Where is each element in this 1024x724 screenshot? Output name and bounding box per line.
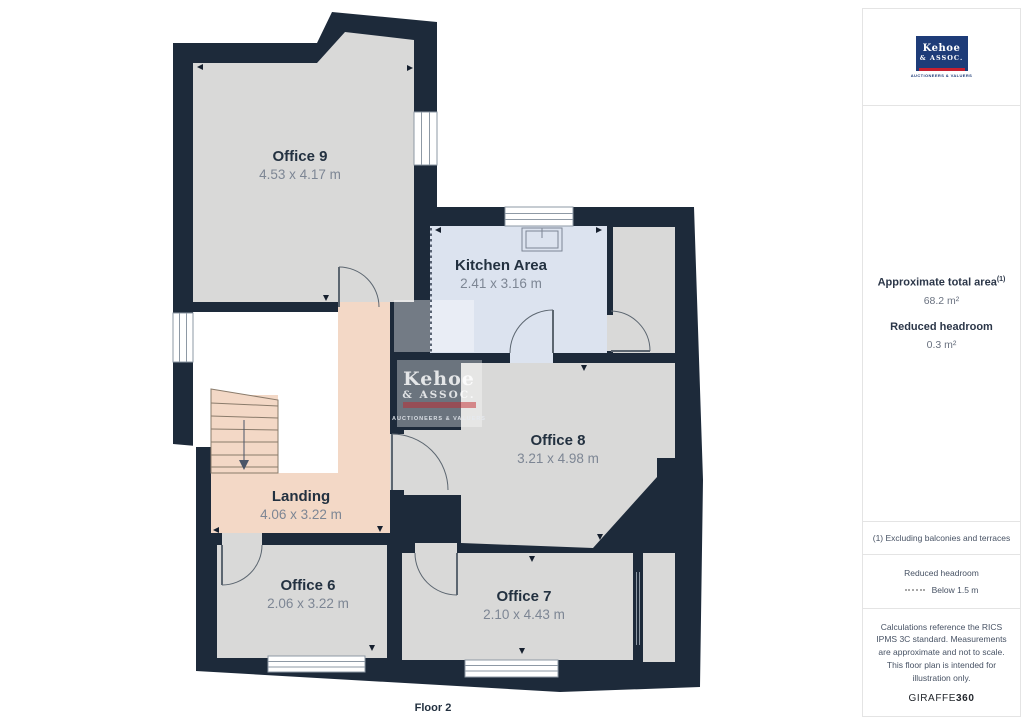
svg-text:& ASSOC.: & ASSOC. [402,389,475,401]
svg-text:Kehoe: Kehoe [403,368,475,390]
headroom-label: Reduced headroom [890,321,993,333]
disclaimer-text: Calculations reference the RICS IPMS 3C … [872,621,1012,685]
floor-plan-page: Office 9 4.53 x 4.17 m Kitchen Area 2.41… [0,0,1024,724]
office-9-label: Office 9 [272,148,327,165]
office-9-dim: 4.53 x 4.17 m [259,167,341,182]
office-7-label: Office 7 [496,588,551,605]
footnote-text: (1) Excluding balconies and terraces [873,532,1011,545]
brand-name: GIRAFFE [908,693,956,704]
logo-text-assoc: & ASSOC. [920,54,963,63]
floor-plan-drawing: Office 9 4.53 x 4.17 m Kitchen Area 2.41… [0,0,862,724]
watermark: Kehoe & ASSOC. AUCTIONEERS & VALUERS [392,360,486,427]
legend-card: Reduced headroom Below 1.5 m [862,554,1021,609]
office-7-alcove [643,553,675,662]
logo-red-bar [919,68,965,71]
brand-suffix: 360 [956,693,975,704]
legend-title: Reduced headroom [904,568,979,578]
footnote-card: (1) Excluding balconies and terraces [862,521,1021,555]
footnote-marker: (1) [997,276,1006,283]
dotted-line-swatch [905,589,925,591]
kehoe-logo: Kehoe & ASSOC. [916,36,968,70]
giraffe360-brand: GIRAFFE360 [908,693,974,704]
landing-label: Landing [272,488,330,505]
office-8-dim: 3.21 x 4.98 m [517,451,599,466]
kitchen-nook [613,227,675,353]
legend-item-label: Below 1.5 m [932,585,979,595]
office-6-label: Office 6 [280,577,335,594]
stairs [211,389,278,473]
reduced-headroom-overlay [394,300,474,352]
kitchen-label: Kitchen Area [455,257,548,274]
disclaimer-card: Calculations reference the RICS IPMS 3C … [862,608,1021,717]
logo-text-kehoe: Kehoe [923,43,961,54]
area-summary-card: Approximate total area(1) 68.2 m² Reduce… [862,105,1021,522]
svg-text:AUCTIONEERS & VALUERS: AUCTIONEERS & VALUERS [392,416,486,422]
landing-dim: 4.06 x 3.22 m [260,507,342,522]
total-area-label: Approximate total area(1) [878,276,1006,289]
kitchen-sink [522,228,562,251]
info-sidebar: Kehoe & ASSOC. AUCTIONEERS & VALUERS App… [862,8,1021,717]
kitchen-dim: 2.41 x 3.16 m [460,276,542,291]
office-7-dim: 2.10 x 4.43 m [483,607,565,622]
headroom-value: 0.3 m² [927,339,957,351]
total-area-value: 68.2 m² [924,295,960,307]
office-6-dim: 2.06 x 3.22 m [267,596,349,611]
logo-caption: AUCTIONEERS & VALUERS [911,73,972,78]
office-8-label: Office 8 [530,432,585,449]
logo-card: Kehoe & ASSOC. AUCTIONEERS & VALUERS [862,8,1021,106]
floor-label: Floor 2 [415,702,452,714]
